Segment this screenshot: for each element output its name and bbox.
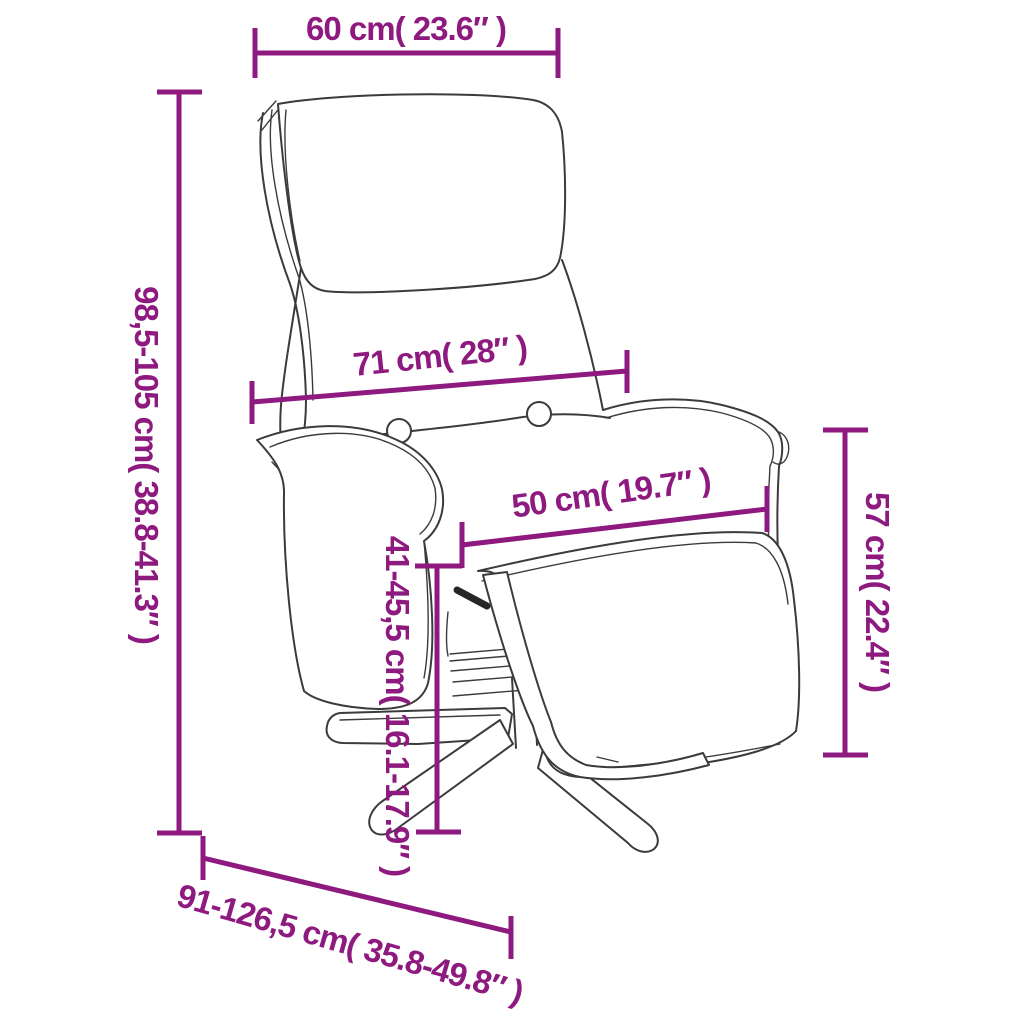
dim-line-footrest-width (462, 486, 767, 568)
dim-line-seat-height (415, 566, 462, 832)
dim-line-back-width (252, 350, 627, 424)
dim-line-total-height (157, 92, 202, 833)
dimension-diagram: 60 cm( 23.6″ ) 98,5-105 cm( 38.8-41.3″ )… (0, 0, 1024, 1024)
dimension-lines (0, 0, 1024, 1024)
dim-line-headrest-width (255, 28, 558, 78)
dim-line-armrest-height (823, 430, 868, 755)
dim-line-depth (203, 836, 511, 959)
